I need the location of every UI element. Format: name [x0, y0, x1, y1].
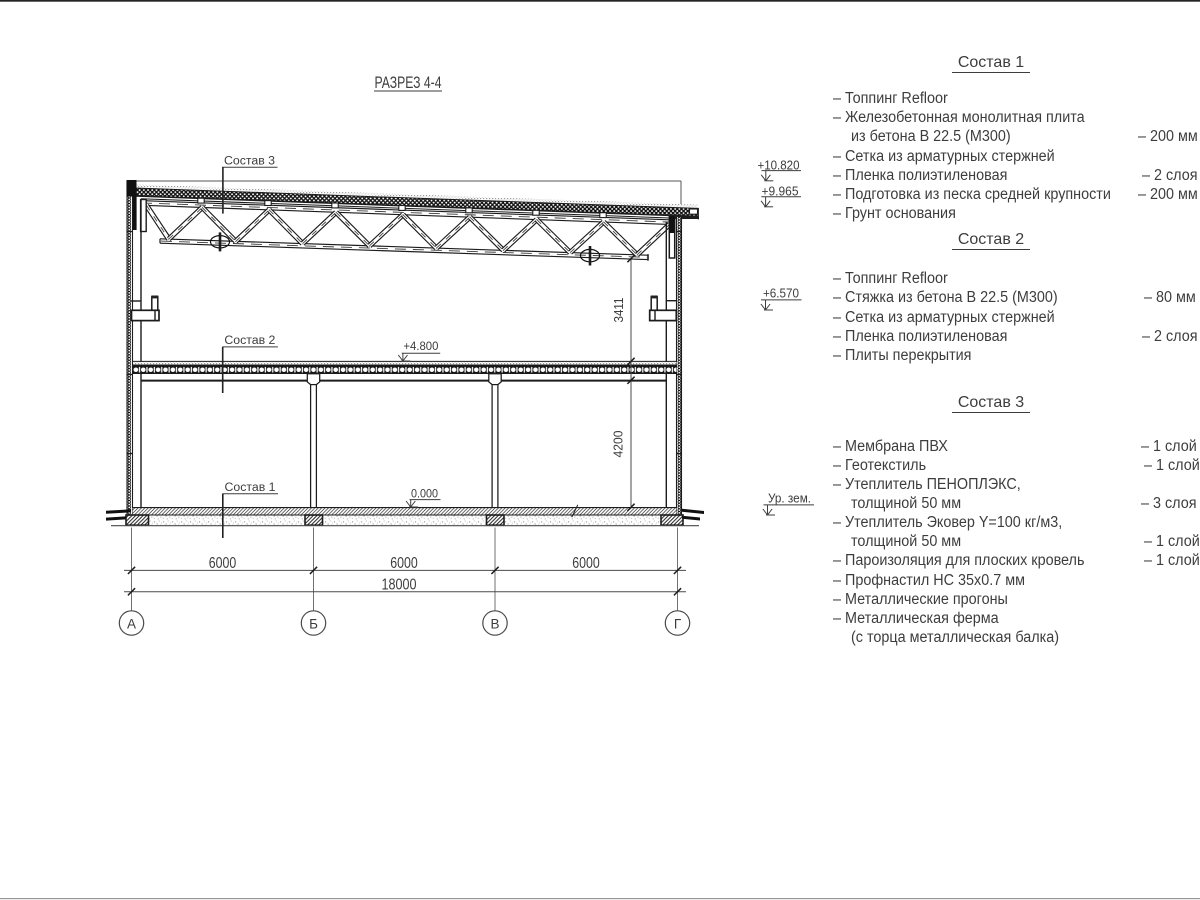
- svg-text:18000: 18000: [382, 577, 417, 594]
- svg-text:Б: Б: [309, 616, 318, 631]
- svg-text:РАЗРЕЗ 4-4: РАЗРЕЗ 4-4: [375, 73, 442, 92]
- svg-text:Г: Г: [674, 616, 682, 631]
- svg-text:3411: 3411: [612, 297, 626, 322]
- svg-text:В: В: [490, 616, 499, 631]
- svg-text:Состав 1: Состав 1: [225, 482, 276, 494]
- svg-text:Состав 2: Состав 2: [224, 335, 275, 347]
- svg-text:+6.570: +6.570: [763, 287, 799, 301]
- svg-text:А: А: [127, 616, 136, 631]
- svg-text:+9.965: +9.965: [762, 184, 799, 198]
- svg-text:6000: 6000: [390, 555, 418, 572]
- svg-text:0.000: 0.000: [411, 486, 438, 500]
- svg-text:6000: 6000: [209, 555, 237, 572]
- svg-text:6000: 6000: [572, 555, 600, 572]
- svg-text:4200: 4200: [612, 430, 626, 457]
- svg-text:Состав 3: Состав 3: [224, 156, 275, 168]
- svg-text:Ур. зем.: Ур. зем.: [768, 491, 811, 505]
- svg-text:+4.800: +4.800: [403, 339, 438, 353]
